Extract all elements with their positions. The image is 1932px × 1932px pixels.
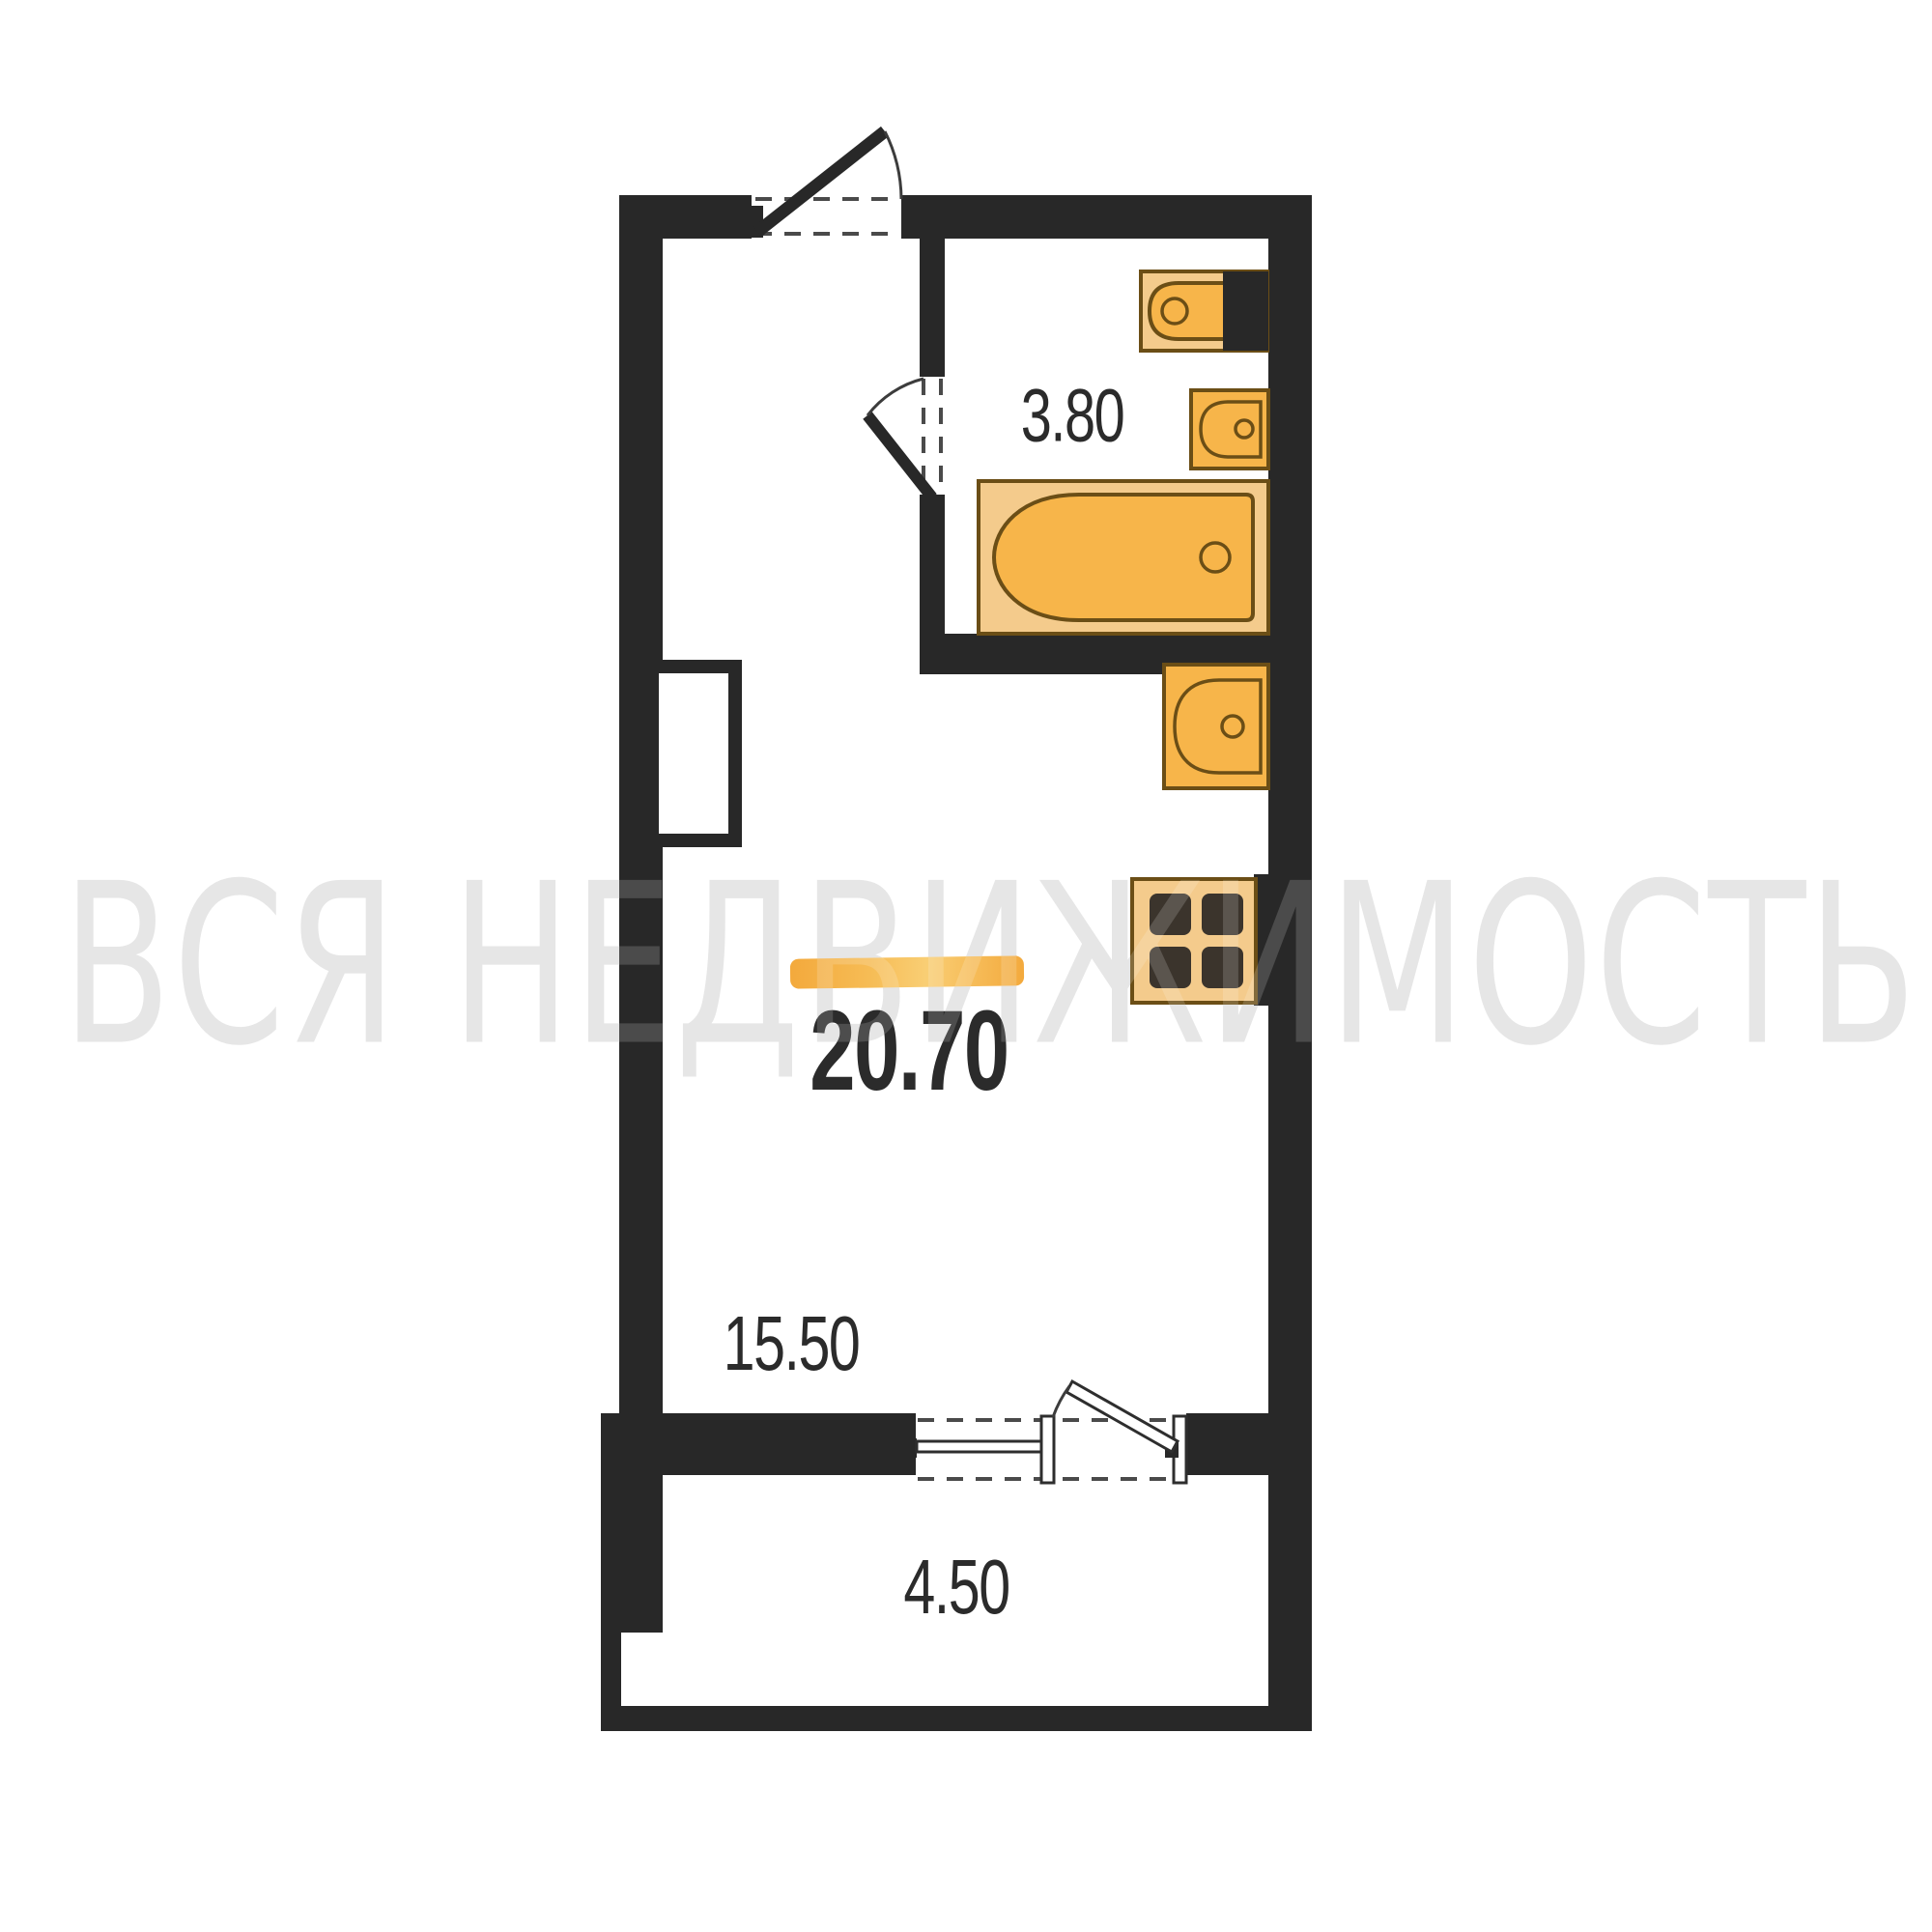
bathroom-wall-left-upper: [920, 239, 945, 377]
living-area-label: 15.50: [724, 1299, 860, 1388]
room-bottom-wall: [601, 1413, 916, 1475]
stove-burner-3: [1150, 947, 1191, 988]
bathroom-area-label: 3.80: [1021, 372, 1123, 460]
bathroom-sink-icon: [1191, 390, 1268, 469]
floorplan-stage: ВСЯ НЕДВИЖИМОСТЬ: [0, 0, 1932, 1932]
stove-icon: [1132, 874, 1269, 1006]
balcony-door-leaf: [1066, 1381, 1178, 1452]
stove-burner-4: [1202, 947, 1243, 988]
wall-niche-icon: [652, 667, 735, 840]
entrance-door-icon: [744, 131, 901, 238]
balcony-window-glass: [917, 1441, 1042, 1452]
balcony-door-arc: [1053, 1386, 1069, 1417]
balcony-window-jamb-center: [1041, 1416, 1054, 1483]
balcony-wall-left-outer: [601, 1413, 621, 1731]
total-area-label: 20.70: [810, 985, 1008, 1117]
stove-burner-1: [1150, 894, 1191, 935]
bathtub-inner: [994, 495, 1253, 620]
area-highlight-bar: [790, 955, 1024, 988]
wall-right: [1268, 195, 1312, 1729]
kitchen-sink-icon: [1164, 665, 1268, 788]
bathroom-door-icon: [867, 379, 941, 497]
bathroom-door-arc: [867, 379, 923, 415]
wall-top-right: [901, 195, 1312, 239]
entrance-door-leaf: [757, 131, 885, 232]
balcony-window-tick: [901, 1438, 917, 1458]
toilet-icon: [1141, 271, 1268, 351]
balcony-area-label: 4.50: [903, 1543, 1009, 1632]
entrance-door-arc: [885, 131, 901, 199]
bathroom-door-leaf: [867, 415, 932, 497]
stove-burner-2: [1202, 894, 1243, 935]
balcony-wall-bottom: [601, 1706, 1312, 1731]
kitchen-sink-base: [1164, 665, 1268, 788]
balcony-wall-left-inner: [621, 1475, 663, 1633]
room-bottom-wall-stub: [1186, 1413, 1268, 1475]
bathtub-icon: [979, 481, 1268, 634]
toilet-tank: [1223, 271, 1268, 351]
